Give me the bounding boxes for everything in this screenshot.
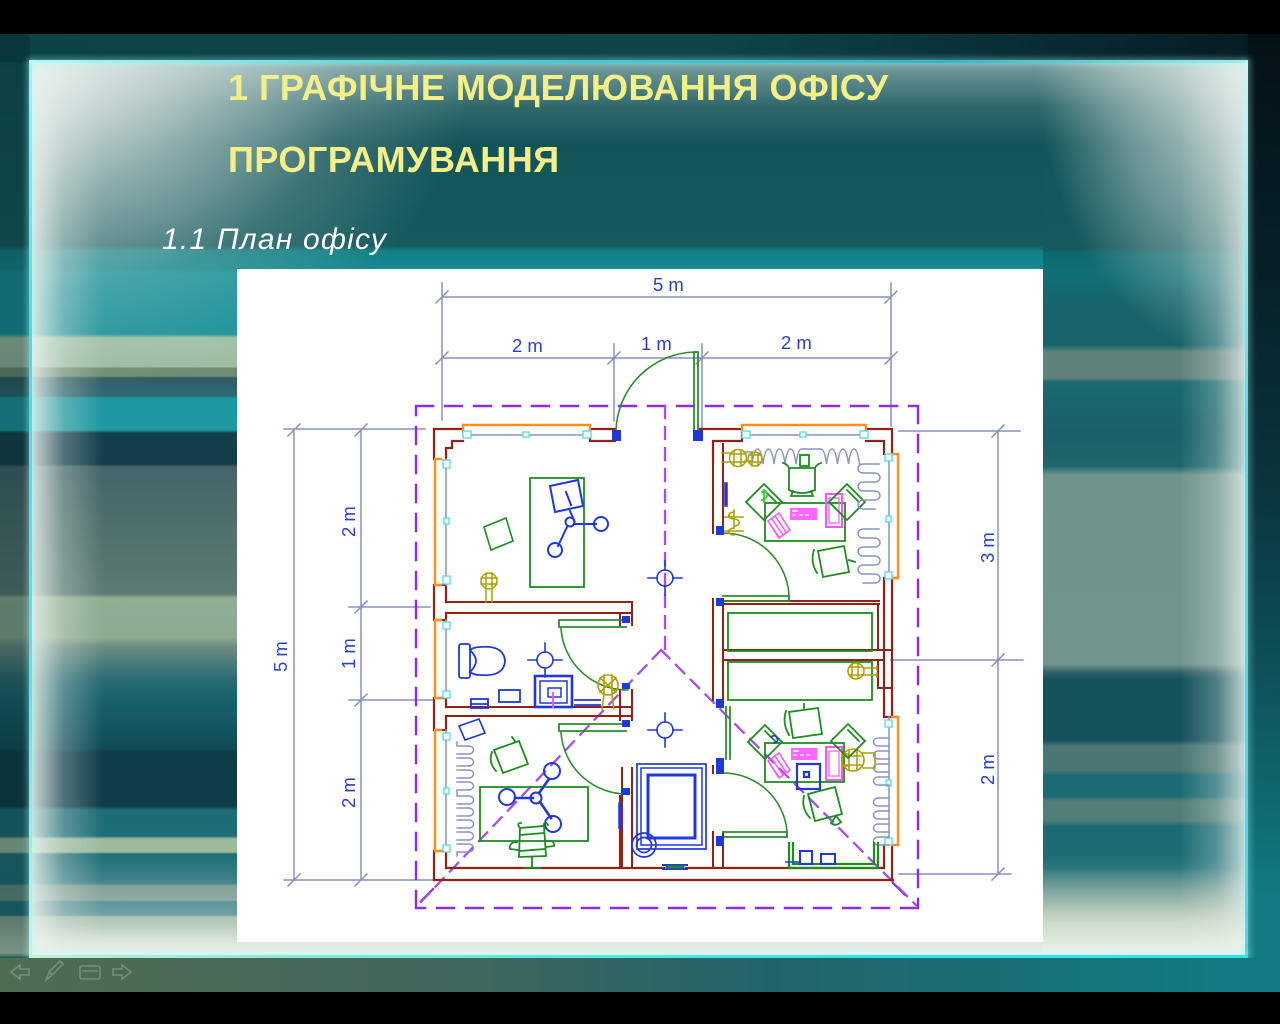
svg-text:2 m: 2 m	[338, 777, 359, 808]
svg-text:2 m: 2 m	[977, 754, 998, 785]
svg-text:1 m: 1 m	[641, 333, 672, 354]
svg-text:5 m: 5 m	[270, 641, 291, 672]
svg-text:5 m: 5 m	[653, 274, 684, 295]
svg-text:2 m: 2 m	[512, 335, 543, 356]
svg-text:1 m: 1 m	[338, 638, 359, 669]
svg-text:2 m: 2 m	[781, 332, 812, 353]
svg-text:3 m: 3 m	[977, 532, 998, 563]
svg-text:2 m: 2 m	[338, 506, 359, 537]
